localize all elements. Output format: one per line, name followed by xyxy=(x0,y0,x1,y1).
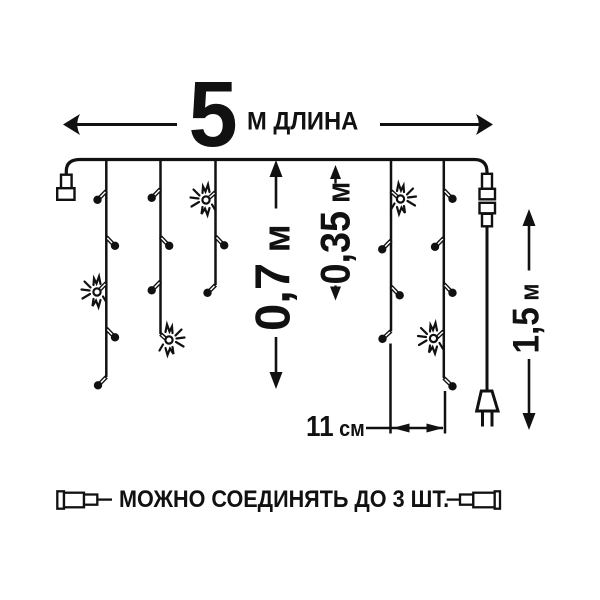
svg-text:5: 5 xyxy=(189,63,238,167)
svg-text:М ДЛИНА: М ДЛИНА xyxy=(247,108,358,136)
svg-text:МОЖНО СОЕДИНЯТЬ ДО 3 ШТ.: МОЖНО СОЕДИНЯТЬ ДО 3 ШТ. xyxy=(119,485,449,512)
